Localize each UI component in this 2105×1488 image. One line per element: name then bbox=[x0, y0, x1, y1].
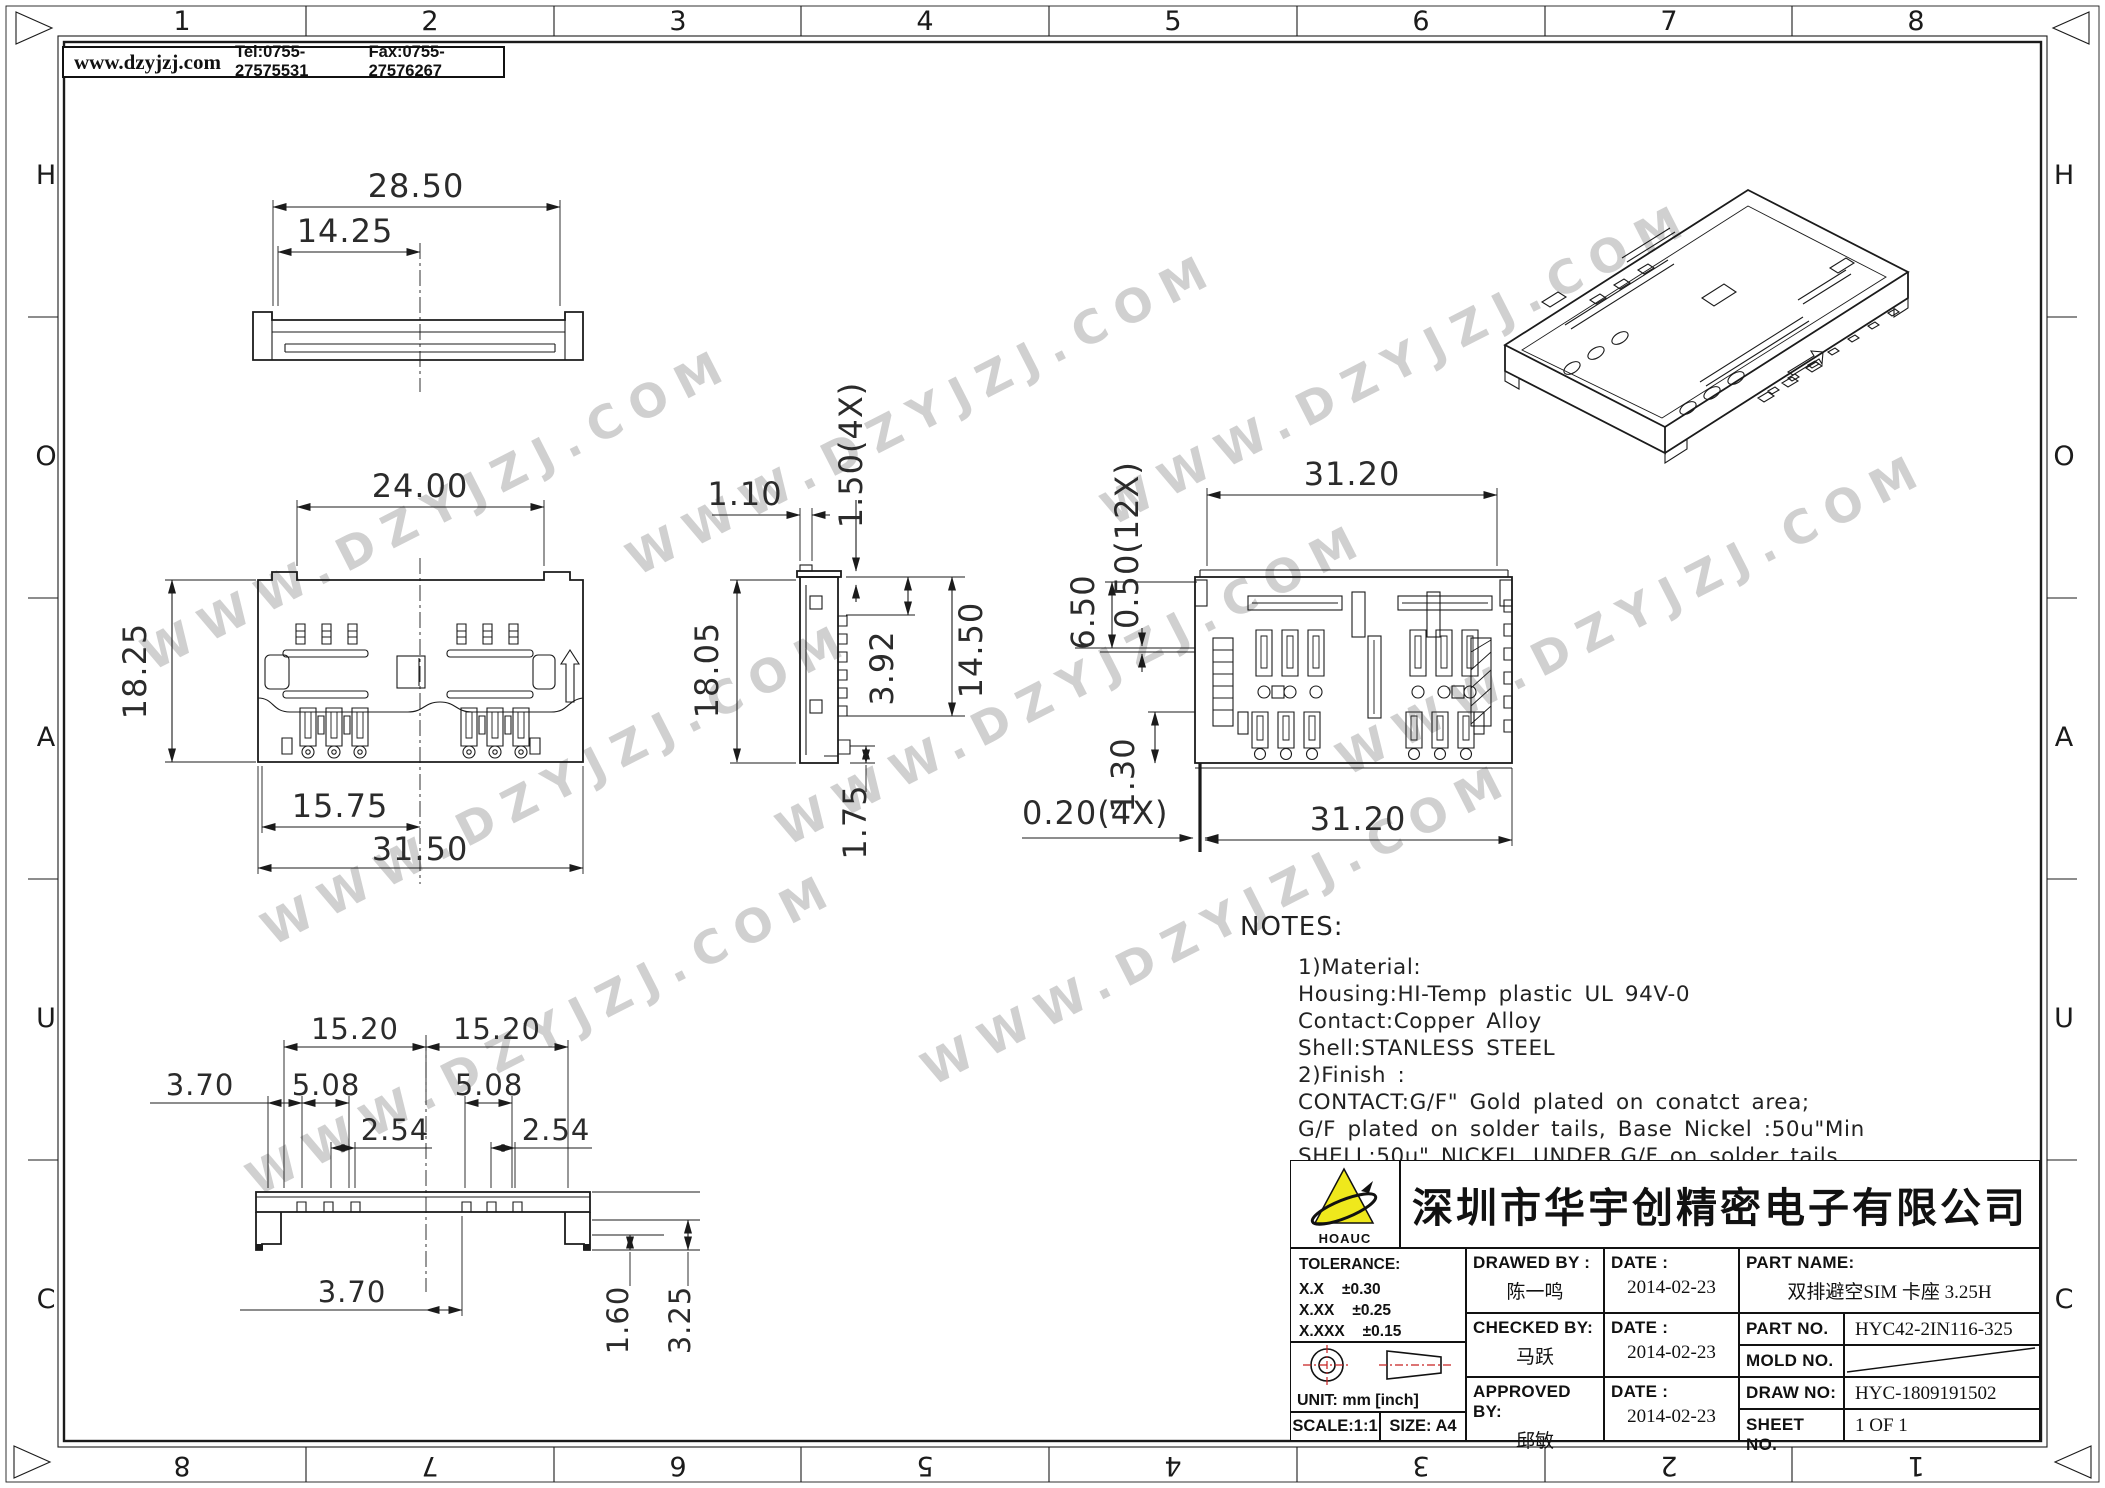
col-label-bottom: 2 bbox=[1652, 1450, 1686, 1481]
dim-side-foot: 1.75 bbox=[836, 784, 874, 859]
projection-symbol-icon bbox=[1291, 1343, 1463, 1387]
row-label-left: U bbox=[32, 1003, 60, 1034]
row-label-left: H bbox=[32, 160, 60, 191]
corner-arrow-icon bbox=[2053, 12, 2089, 44]
dim-pins-center: 3.70 bbox=[318, 1275, 387, 1309]
part-name-label: PART NAME: bbox=[1740, 1249, 2039, 1277]
dim-front-height: 18.25 bbox=[116, 623, 154, 720]
row-label-right: A bbox=[2050, 722, 2078, 753]
approved-by-value: 邱敏 bbox=[1467, 1426, 1603, 1453]
dim-front-top: 24.00 bbox=[372, 467, 469, 505]
part-name-cell: PART NAME: 双排避空SIM 卡座 3.25H bbox=[1739, 1248, 2040, 1313]
row-label-left: O bbox=[32, 441, 60, 472]
mold-no-label: MOLD NO. bbox=[1740, 1346, 1843, 1376]
tol-label: X.XX bbox=[1299, 1300, 1334, 1321]
sheet-no-label: SHEET NO. bbox=[1740, 1410, 1843, 1460]
checked-by-cell: CHECKED BY: 马跃 bbox=[1466, 1313, 1604, 1377]
notes-block: NOTES: 1)Material: Housing:HI-Temp plast… bbox=[1240, 912, 1865, 1170]
dim-side-pitch: 1.50(4X) bbox=[832, 382, 870, 529]
col-label-top: 8 bbox=[1899, 6, 1933, 37]
part-no-value: HYC42-2IN116-325 bbox=[1845, 1314, 2039, 1341]
row-label-right: U bbox=[2050, 1003, 2078, 1034]
fax-text: Fax:0755-27576267 bbox=[369, 43, 493, 81]
unit-label: UNIT: bbox=[1297, 1392, 1338, 1409]
view-bottom-plan: 31.20 6.50 0.50(12X) 1.30 0.20(4X) 31.20 bbox=[1022, 455, 1512, 852]
draw-no-label: DRAW NO: bbox=[1740, 1378, 1843, 1408]
blank-diagonal bbox=[1845, 1346, 2037, 1374]
date2-value: 2014-02-23 bbox=[1605, 1342, 1738, 1364]
date3-cell: DATE : 2014-02-23 bbox=[1604, 1377, 1739, 1441]
scale-cell: SCALE:1:1 bbox=[1290, 1412, 1380, 1441]
dim-bottom-pitch: 0.50(12X) bbox=[1108, 461, 1146, 629]
part-no-value-cell: HYC42-2IN116-325 bbox=[1844, 1313, 2040, 1345]
note-line: Shell:STANLESS STEEL bbox=[1298, 1035, 1865, 1062]
col-label-bottom: 7 bbox=[413, 1450, 447, 1481]
drawed-by-label: DRAWED BY : bbox=[1467, 1249, 1603, 1277]
dim-bottom-width-bot: 31.20 bbox=[1310, 800, 1407, 838]
dim-pins-h1: 1.60 bbox=[601, 1286, 635, 1355]
date2-cell: DATE : 2014-02-23 bbox=[1604, 1313, 1739, 1377]
sheet-no-label-cell: SHEET NO. bbox=[1739, 1409, 1844, 1441]
corner-arrow-icon bbox=[2055, 1446, 2091, 1478]
draw-no-value-cell: HYC-1809191502 bbox=[1844, 1377, 2040, 1409]
view-top-profile: 28.50 14.25 bbox=[253, 167, 583, 392]
col-label-top: 5 bbox=[1156, 6, 1190, 37]
dim-side-d1: 3.92 bbox=[863, 630, 901, 705]
part-no-label: PART NO. bbox=[1740, 1314, 1843, 1344]
corner-arrow-icon bbox=[16, 12, 52, 44]
dim-pins-pitch-l: 5.08 bbox=[292, 1068, 361, 1102]
dim-front-half: 15.75 bbox=[292, 787, 389, 825]
col-label-top: 1 bbox=[165, 6, 199, 37]
col-label-top: 7 bbox=[1652, 6, 1686, 37]
row-label-right: O bbox=[2050, 441, 2078, 472]
date1-cell: DATE : 2014-02-23 bbox=[1604, 1248, 1739, 1313]
view-side-profile: 1.10 1.50(4X) 18.05 3.92 14.50 1.75 bbox=[688, 382, 990, 860]
sheet-no-value: 1 OF 1 bbox=[1845, 1410, 2039, 1437]
col-label-bottom: 1 bbox=[1899, 1450, 1933, 1481]
note-line: Housing:HI-Temp plastic UL 94V-0 bbox=[1298, 981, 1865, 1008]
tol-label: X.XXX bbox=[1299, 1321, 1345, 1342]
tol-value: ±0.15 bbox=[1363, 1321, 1402, 1342]
col-label-bottom: 8 bbox=[165, 1450, 199, 1481]
note-line: 2)Finish : bbox=[1298, 1062, 1865, 1089]
logo-text: HOAUC bbox=[1291, 1231, 1399, 1246]
dim-pins-sub-r: 2.54 bbox=[522, 1113, 591, 1147]
projection-cell: UNIT: mm [inch] bbox=[1290, 1342, 1466, 1412]
dim-pins-left-span: 15.20 bbox=[311, 1012, 399, 1046]
dim-side-tab: 1.10 bbox=[707, 475, 782, 513]
tolerance-title: TOLERANCE: bbox=[1299, 1254, 1457, 1275]
logo-cell: HOAUC bbox=[1290, 1160, 1400, 1248]
dim-pins-sub-l: 2.54 bbox=[361, 1113, 430, 1147]
dim-bottom-gap: 0.20(4X) bbox=[1022, 794, 1169, 832]
telephone-text: Tel:0755-27575531 bbox=[235, 43, 355, 81]
approved-by-cell: APPROVED BY: 邱敏 bbox=[1466, 1377, 1604, 1441]
dim-side-d2: 14.50 bbox=[952, 602, 990, 699]
approved-by-label: APPROVED BY: bbox=[1467, 1378, 1603, 1426]
unit-value: mm [inch] bbox=[1342, 1392, 1418, 1409]
dim-bottom-e1: 6.50 bbox=[1064, 574, 1102, 649]
row-label-left: A bbox=[32, 722, 60, 753]
dim-bottom-width-top: 31.20 bbox=[1304, 455, 1401, 493]
header-contact-bar: www.dzyjzj.com Tel:0755-27575531 Fax:075… bbox=[62, 46, 505, 78]
tol-label: X.X bbox=[1299, 1279, 1324, 1300]
dim-front-width: 31.50 bbox=[372, 830, 469, 868]
draw-no-label-cell: DRAW NO: bbox=[1739, 1377, 1844, 1409]
mold-no-label-cell: MOLD NO. bbox=[1739, 1345, 1844, 1377]
dim-pins-right-span: 15.20 bbox=[453, 1012, 541, 1046]
date1-label: DATE : bbox=[1605, 1249, 1738, 1277]
notes-title: NOTES: bbox=[1240, 912, 1865, 942]
insert-arrow-icon bbox=[561, 650, 579, 702]
dim-pins-h2: 3.25 bbox=[663, 1286, 697, 1355]
date3-value: 2014-02-23 bbox=[1605, 1406, 1738, 1428]
col-label-top: 6 bbox=[1404, 6, 1438, 37]
mold-no-value-cell bbox=[1844, 1345, 2040, 1377]
dim-side-height: 18.05 bbox=[688, 622, 726, 719]
view-front-plan: 24.00 18.25 15.75 31.50 bbox=[116, 467, 583, 884]
date2-label: DATE : bbox=[1605, 1314, 1738, 1342]
col-label-bottom: 6 bbox=[661, 1450, 695, 1481]
row-label-left: C bbox=[32, 1284, 60, 1315]
col-label-top: 2 bbox=[413, 6, 447, 37]
corner-arrow-icon bbox=[14, 1446, 50, 1478]
view-pin-profile: 15.20 15.20 3.70 5.08 5.08 2.54 2.54 3.7… bbox=[150, 1012, 700, 1354]
col-label-top: 4 bbox=[908, 6, 942, 37]
dim-pins-offset: 3.70 bbox=[166, 1068, 235, 1102]
tolerance-cell: TOLERANCE: X.X±0.30 X.XX±0.25 X.XXX±0.15… bbox=[1290, 1248, 1466, 1342]
drawing-sheet: WWW.DZYJZJ.COM WWW.DZYJZJ.COM WWW.DZYJZJ… bbox=[0, 0, 2105, 1488]
row-label-right: C bbox=[2050, 1284, 2078, 1315]
sheet-no-value-cell: 1 OF 1 bbox=[1844, 1409, 2040, 1441]
col-label-bottom: 3 bbox=[1404, 1450, 1438, 1481]
col-label-bottom: 5 bbox=[908, 1450, 942, 1481]
view-isometric bbox=[1505, 190, 1908, 463]
dim-top-width: 28.50 bbox=[368, 167, 465, 205]
part-no-label-cell: PART NO. bbox=[1739, 1313, 1844, 1345]
note-line: G/F plated on solder tails, Base Nickel … bbox=[1298, 1116, 1865, 1143]
note-line: Contact:Copper Alloy bbox=[1298, 1008, 1865, 1035]
website-text: www.dzyjzj.com bbox=[74, 50, 221, 75]
part-name-value: 双排避空SIM 卡座 3.25H bbox=[1740, 1277, 2039, 1304]
dim-pins-pitch-r: 5.08 bbox=[455, 1068, 524, 1102]
checked-by-value: 马跃 bbox=[1467, 1342, 1603, 1369]
note-line: CONTACT:G/F" Gold plated on conatct area… bbox=[1298, 1089, 1865, 1116]
drawed-by-value: 陈一鸣 bbox=[1467, 1277, 1603, 1304]
tol-value: ±0.25 bbox=[1352, 1300, 1391, 1321]
checked-by-label: CHECKED BY: bbox=[1467, 1314, 1603, 1342]
dim-top-half: 14.25 bbox=[297, 212, 394, 250]
draw-no-value: HYC-1809191502 bbox=[1845, 1378, 2039, 1405]
row-label-right: H bbox=[2050, 160, 2078, 191]
date1-value: 2014-02-23 bbox=[1605, 1277, 1738, 1299]
size-cell: SIZE: A4 bbox=[1380, 1412, 1466, 1441]
col-label-bottom: 4 bbox=[1156, 1450, 1190, 1481]
note-line: 1)Material: bbox=[1298, 954, 1865, 981]
company-name: 深圳市华宇创精密电子有限公司 bbox=[1400, 1160, 2040, 1248]
col-label-top: 3 bbox=[661, 6, 695, 37]
date3-label: DATE : bbox=[1605, 1378, 1738, 1406]
tol-value: ±0.30 bbox=[1342, 1279, 1381, 1300]
drawed-by-cell: DRAWED BY : 陈一鸣 bbox=[1466, 1248, 1604, 1313]
